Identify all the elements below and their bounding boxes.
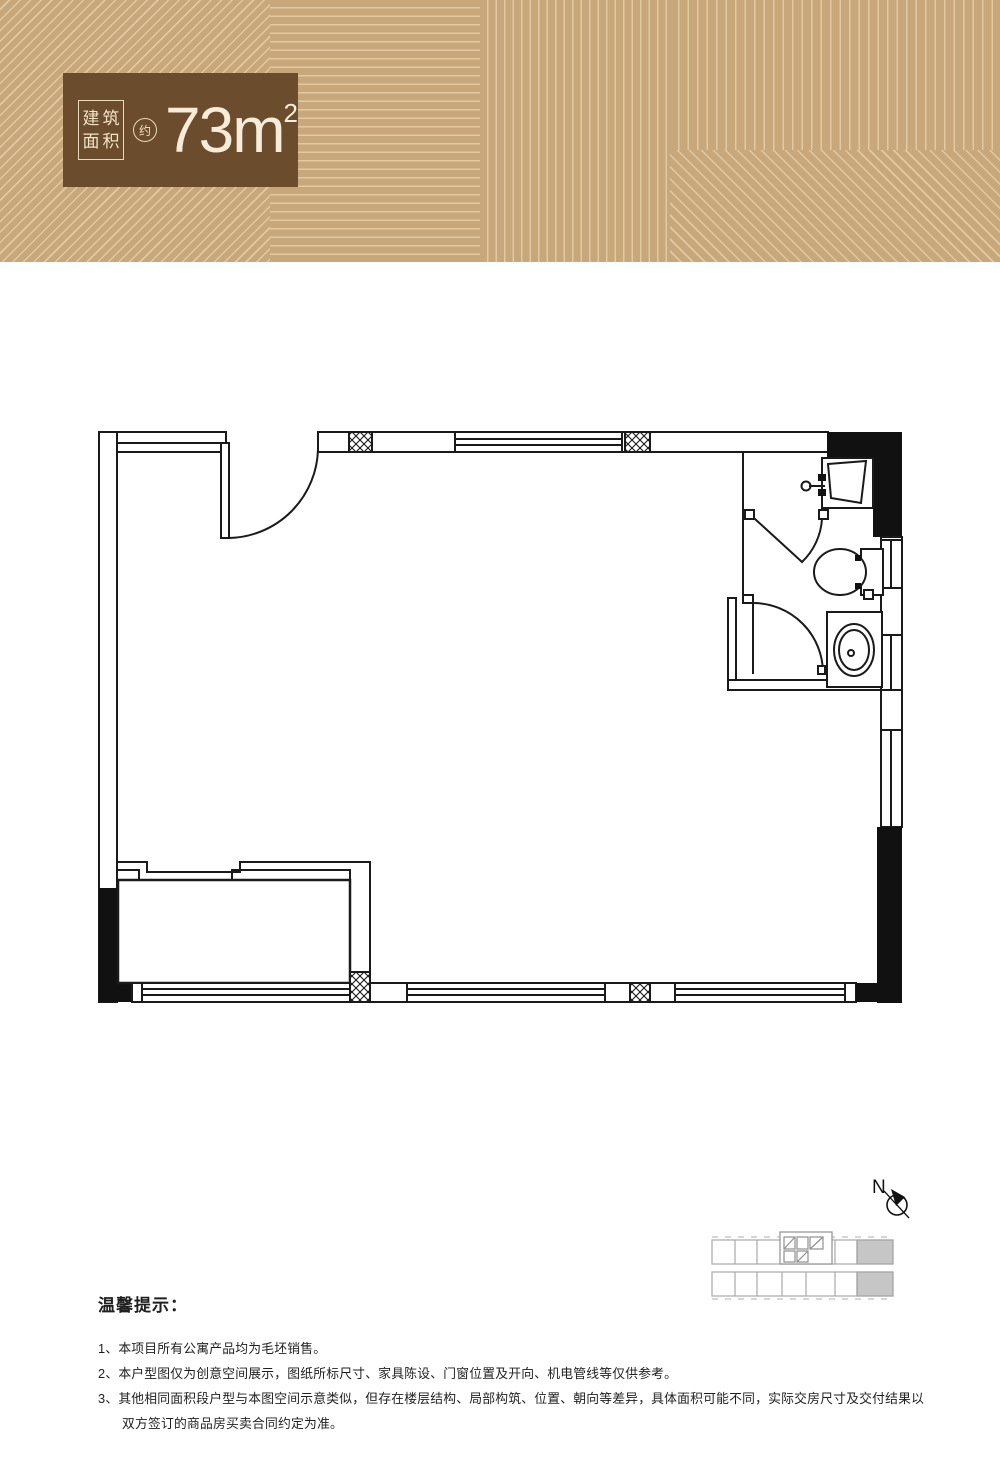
compass-needle	[891, 1189, 905, 1206]
column-crosshatch	[350, 972, 370, 1002]
notes-title: 温馨提示：	[98, 1291, 934, 1316]
column-crosshatch	[349, 432, 372, 452]
column-crosshatch	[625, 432, 650, 452]
right-wall	[877, 537, 902, 1003]
bottom-wall	[132, 983, 902, 1002]
shower-door	[745, 510, 828, 562]
solid-wall-right	[877, 827, 902, 1003]
building-key-plan	[712, 1232, 893, 1299]
washbasin-icon	[827, 612, 882, 687]
window-bottom-3	[675, 983, 845, 1002]
shower-tray	[822, 458, 873, 508]
core-block	[780, 1232, 832, 1264]
note-item-3: 3、其他相同面积段户型与本图空间示意类似，但存在楼层结构、局部构筑、位置、朝向等…	[98, 1386, 934, 1436]
window-top	[455, 432, 622, 452]
shower-head-icon	[802, 474, 827, 496]
window-bottom-2	[407, 983, 605, 1002]
page: 建筑 面积 约 73m 2	[0, 0, 1000, 1473]
north-label: N	[872, 1177, 886, 1198]
top-wall	[99, 432, 902, 537]
highlighted-unit-top	[857, 1240, 893, 1264]
notes-section: 温馨提示： 1、本项目所有公寓产品均为毛坯销售。 2、本户型图仅为创意空间展示，…	[98, 1291, 934, 1436]
unit-plan	[99, 432, 902, 1003]
note-item-2: 2、本户型图仅为创意空间展示，图纸所标尺寸、家具陈设、门窗位置及开向、机电管线等…	[98, 1361, 934, 1386]
north-compass: N	[872, 1177, 909, 1218]
lower-left-recess	[117, 862, 370, 1002]
floor-plan-drawing: N	[0, 0, 1000, 1473]
toilet-icon	[814, 549, 883, 599]
bathroom-door	[743, 595, 825, 674]
column-crosshatch	[630, 983, 650, 1002]
entry-door	[221, 443, 318, 538]
bathroom	[728, 453, 883, 690]
note-item-1: 1、本项目所有公寓产品均为毛坯销售。	[98, 1336, 934, 1361]
window-bottom-1	[142, 983, 350, 1002]
